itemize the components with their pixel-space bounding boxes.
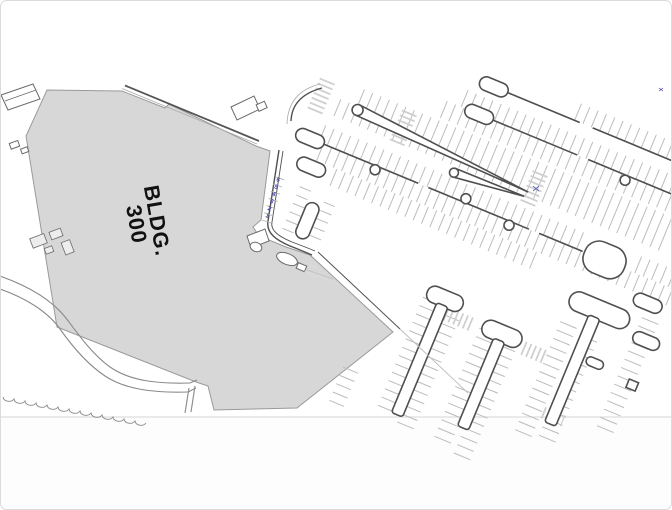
site-plan-viewport: 1 2 3 4 5 6 BLDG. 300 <box>0 0 672 510</box>
lower-margin <box>0 418 672 510</box>
site-plan-canvas[interactable]: 1 2 3 4 5 6 BLDG. 300 <box>0 0 672 510</box>
